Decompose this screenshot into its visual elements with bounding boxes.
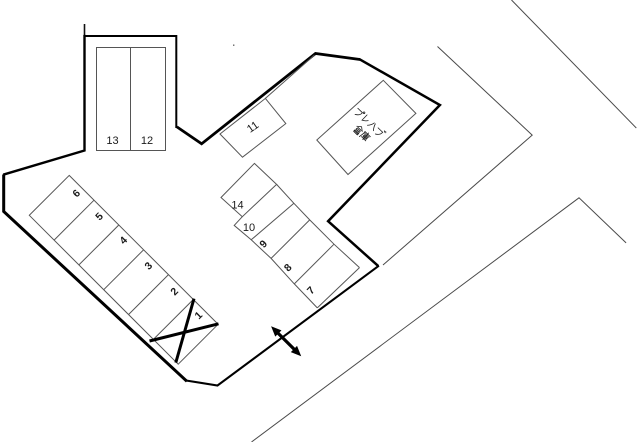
svg-text:12: 12 xyxy=(141,135,153,147)
svg-text:5: 5 xyxy=(93,210,106,223)
svg-text:6: 6 xyxy=(70,187,83,200)
svg-text:11: 11 xyxy=(245,119,261,135)
svg-text:9: 9 xyxy=(257,238,270,251)
svg-text:4: 4 xyxy=(117,234,130,247)
svg-text:3: 3 xyxy=(143,260,156,273)
svg-text:1: 1 xyxy=(193,309,206,322)
svg-text:10: 10 xyxy=(243,222,255,234)
svg-text:13: 13 xyxy=(106,135,118,147)
svg-text:7: 7 xyxy=(305,284,318,297)
svg-text:2: 2 xyxy=(168,285,181,298)
svg-text:14: 14 xyxy=(231,200,243,212)
